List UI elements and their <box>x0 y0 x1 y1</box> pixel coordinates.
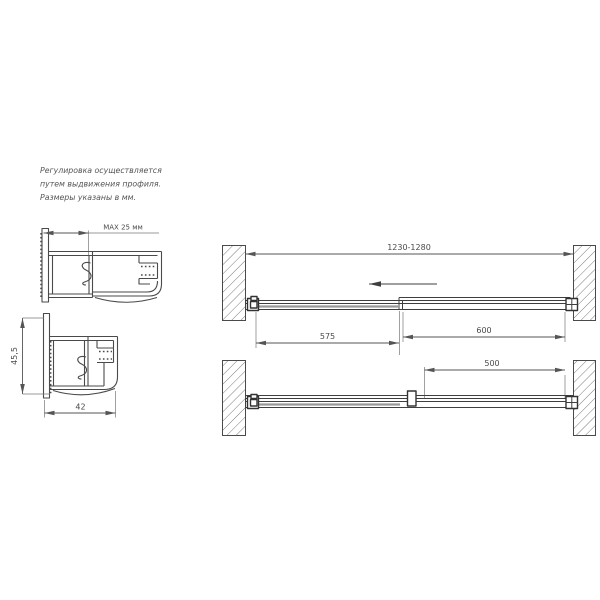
left-wall-bracket <box>248 395 259 409</box>
wall-strip <box>44 314 50 399</box>
wall-profile-cross-section: MAX 25 мм <box>41 224 162 303</box>
left-wall <box>223 246 246 321</box>
adjustment-note: Регулировка осуществляется путем выдвиже… <box>40 166 162 202</box>
technical-drawing-page: Регулировка осуществляется путем выдвиже… <box>0 0 600 600</box>
bumper-arc <box>95 298 157 303</box>
total-width-label: 1230-1280 <box>387 243 431 252</box>
plan-view-closed: 500 <box>223 359 596 436</box>
left-wall <box>223 361 246 436</box>
wall-strip <box>42 229 49 303</box>
plan-view-open: 1230-1280 575 600 <box>223 243 596 355</box>
track-bar <box>246 301 574 310</box>
left-wall-bracket <box>248 297 259 311</box>
sliding-panel-label: 575 <box>320 332 335 341</box>
door-handle <box>408 391 417 406</box>
fixed-glass-label: 500 <box>484 359 499 368</box>
note-line-3: Размеры указаны в мм. <box>40 193 136 202</box>
spring-clip <box>82 262 91 285</box>
shower-door-profile-drawing: Регулировка осуществляется путем выдвиже… <box>0 0 600 600</box>
note-line-2: путем выдвижения профиля. <box>40 180 161 189</box>
right-wall-bracket <box>566 397 578 409</box>
spring-clip <box>78 356 87 379</box>
note-line-1: Регулировка осуществляется <box>40 166 162 175</box>
height-label: 45,5 <box>10 347 19 365</box>
right-wall-bracket <box>566 299 578 311</box>
fixed-panel-label: 600 <box>476 326 491 335</box>
max-adjust-label: MAX 25 мм <box>103 224 143 232</box>
width-label: 42 <box>75 403 85 412</box>
door-profile-cross-section: 45,5 42 <box>10 314 118 418</box>
